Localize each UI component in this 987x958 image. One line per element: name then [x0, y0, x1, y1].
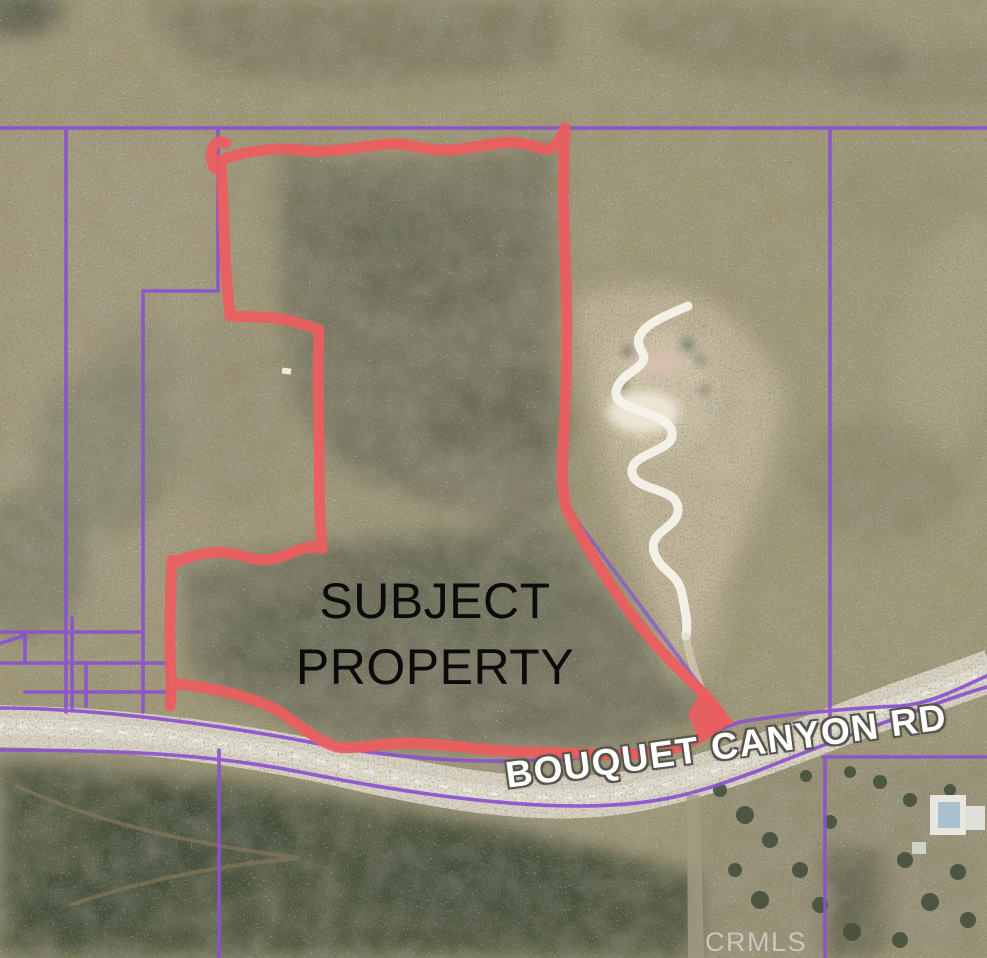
subject-property-label-line1: SUBJECT — [245, 568, 625, 634]
aerial-map-canvas — [0, 0, 987, 958]
subject-property-label-line2: PROPERTY — [245, 634, 625, 700]
subject-property-label: SUBJECT PROPERTY — [245, 568, 625, 700]
aerial-map: SUBJECT PROPERTY BOUQUET CANYON RD CRMLS — [0, 0, 987, 958]
small-structure — [282, 367, 292, 374]
crmls-watermark: CRMLS — [705, 927, 807, 958]
